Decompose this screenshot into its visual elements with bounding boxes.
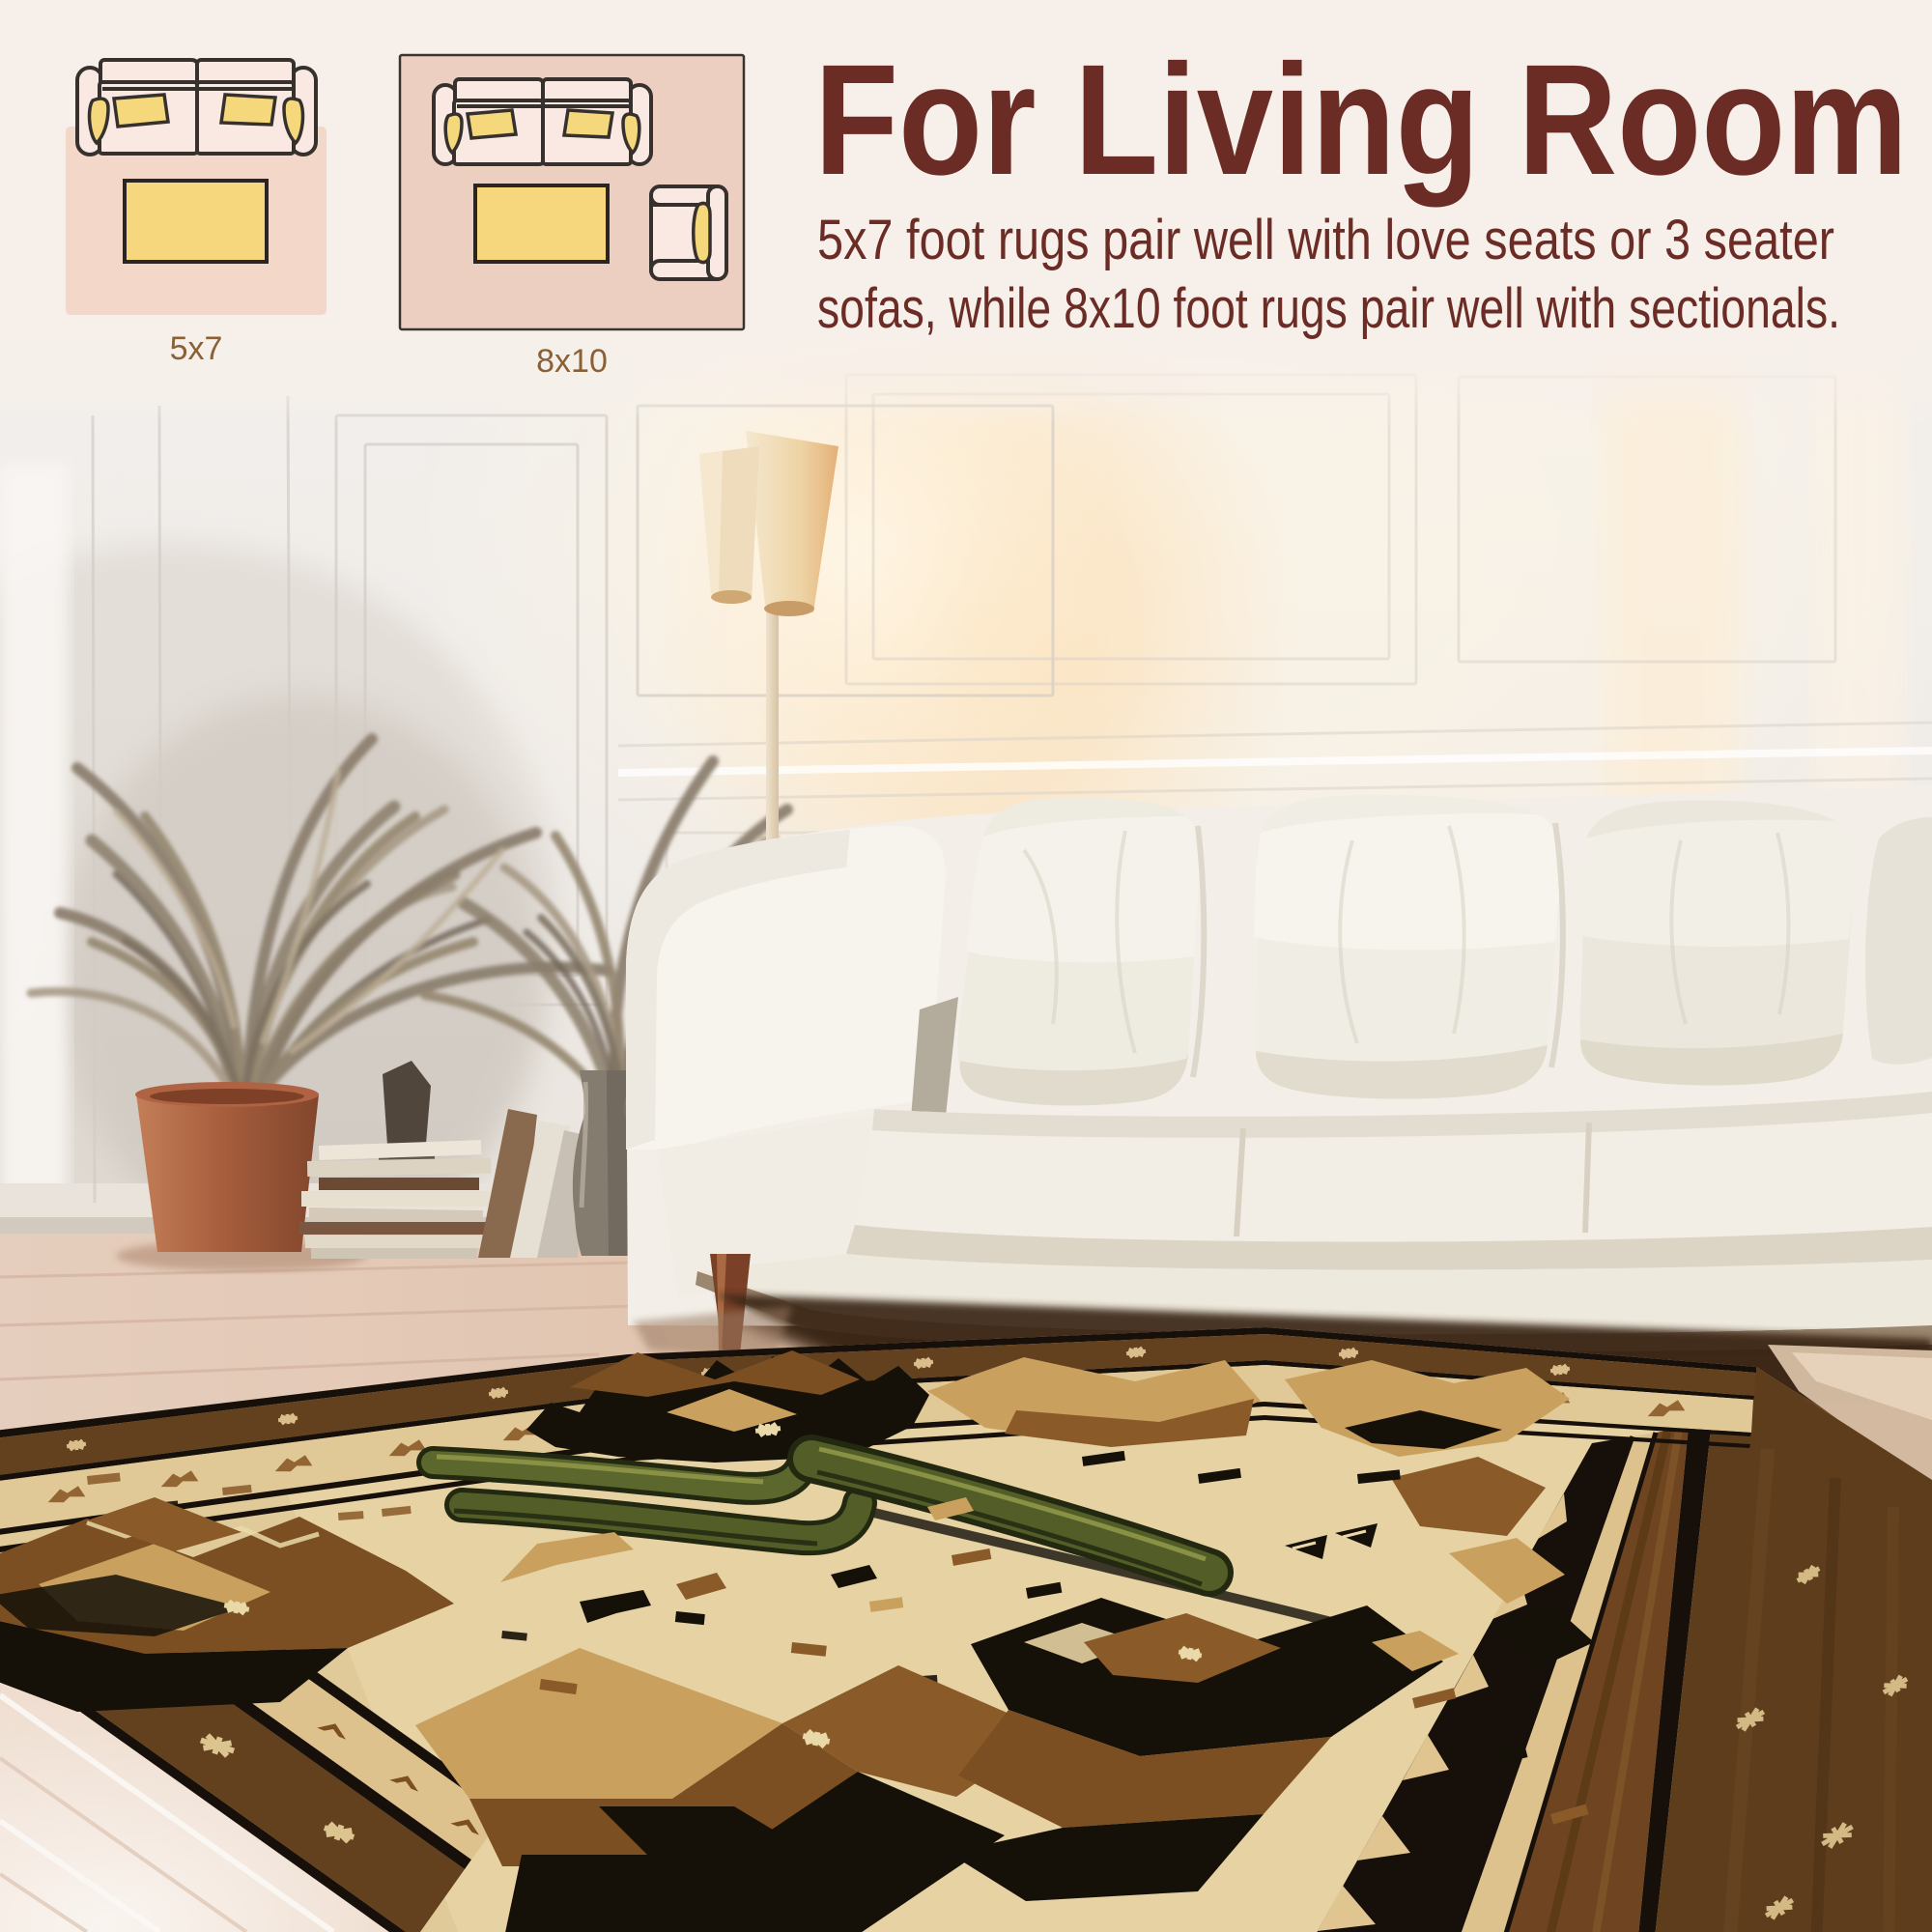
svg-text:sofas, while 8x10 foot rugs pa: sofas, while 8x10 foot rugs pair well wi…	[817, 277, 1840, 340]
svg-text:8x10: 8x10	[536, 343, 608, 380]
svg-text:5x7: 5x7	[170, 330, 223, 367]
svg-text:5x7 foot rugs pair well with l: 5x7 foot rugs pair well with love seats …	[817, 209, 1834, 271]
svg-text:For Living Room: For Living Room	[814, 31, 1908, 208]
